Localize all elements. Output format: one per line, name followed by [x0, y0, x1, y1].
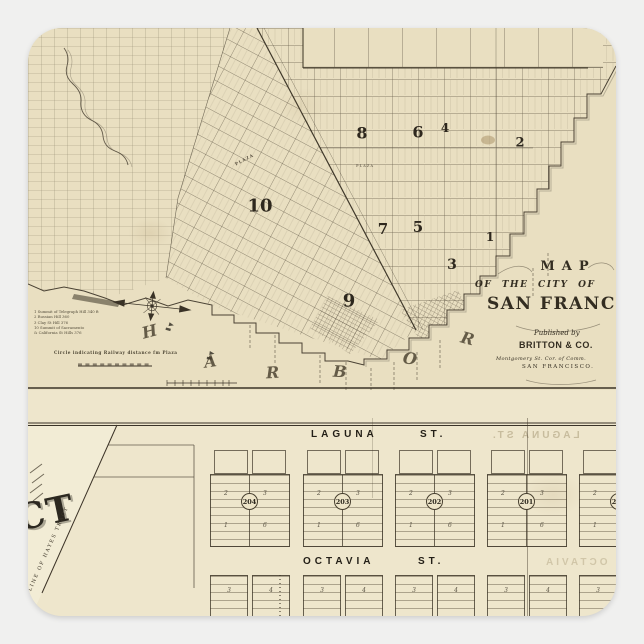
- block-number: 201: [520, 498, 534, 506]
- block-lots: 2 3 1 6 200: [579, 474, 616, 547]
- map-sticker[interactable]: 8 6 4 2 10 7 5 3 1 9 PLAZA PLAZA H A R B…: [28, 28, 616, 616]
- district-number: 6: [412, 123, 423, 142]
- block-number: 203: [336, 498, 350, 506]
- cartouche-address-city: SAN FRANCISCO.: [522, 364, 594, 370]
- block-number-badge: 200: [610, 493, 616, 510]
- district-number: 3: [447, 257, 457, 273]
- district-number: 9: [343, 291, 356, 312]
- half-block: 3: [303, 575, 341, 616]
- lot-number: 2: [409, 490, 413, 497]
- survey-strip-grid: [303, 28, 603, 68]
- city-block-202: 2 3 1 6 202: [395, 450, 473, 545]
- cartouche-publisher: BRITTON & CO.: [519, 340, 593, 350]
- lot-number: 6: [540, 522, 544, 529]
- half-block: 4: [529, 575, 567, 616]
- district-number: 5: [413, 218, 423, 236]
- lot-number: 3: [448, 490, 452, 497]
- district-number: 2: [515, 136, 524, 151]
- street-type-octavia: ST.: [418, 556, 444, 567]
- lot-number: 3: [263, 490, 267, 497]
- lot-number: 3: [227, 587, 231, 594]
- half-block: 4: [345, 575, 383, 616]
- legend-note: Circle indicating Railway distance fm Pl…: [54, 350, 177, 355]
- lot-number: 2: [593, 490, 597, 497]
- corner-lot: [437, 450, 471, 474]
- ghost-street-label: OCTAVIA: [543, 557, 608, 568]
- district-number: 7: [378, 220, 388, 238]
- street-name-octavia: OCTAVIA: [303, 556, 375, 567]
- lot-number: 4: [546, 587, 550, 594]
- block-number-badge: 204: [241, 493, 258, 510]
- corner-lot: [307, 450, 341, 474]
- half-block: 3: [579, 575, 616, 616]
- half-block: 4: [252, 575, 290, 616]
- lot-number: 1: [317, 522, 321, 529]
- lot-number: 4: [269, 587, 273, 594]
- ghost-street-name: OCTAVIA: [543, 557, 608, 568]
- ghost-street-name: LAGUNA: [519, 430, 579, 441]
- block-lots: 2 3 1 6 203: [303, 474, 383, 547]
- corner-lot: [252, 450, 286, 474]
- ghost-street-label: LAGUNA ST.: [490, 430, 580, 441]
- harbor-letter: B: [333, 362, 348, 382]
- cartouche-published-by: Published by: [534, 329, 580, 337]
- lot-number: 3: [356, 490, 360, 497]
- upper-map-canvas: [28, 28, 616, 390]
- fold-crease-line: [372, 418, 373, 498]
- plaza-label: PLAZA: [356, 164, 374, 168]
- block-lots: 2 3 1 6 204: [210, 474, 290, 547]
- street-name-laguna: LAGUNA: [311, 429, 378, 440]
- lot-number: 2: [317, 490, 321, 497]
- district-number: 8: [356, 124, 367, 143]
- lot-number-column: [279, 575, 281, 616]
- half-block: 4: [437, 575, 475, 616]
- lot-number: 3: [320, 587, 324, 594]
- lot-number: 2: [501, 490, 505, 497]
- block-number: 200: [612, 498, 616, 506]
- lot-number: 2: [224, 490, 228, 497]
- block-lots: 2 3 1 6 202: [395, 474, 475, 547]
- harbor-letter: O: [402, 348, 418, 369]
- block-number-badge: 203: [334, 493, 351, 510]
- page-background: 8 6 4 2 10 7 5 3 1 9 PLAZA PLAZA H A R B…: [0, 0, 644, 644]
- lot-number: 4: [362, 587, 366, 594]
- lot-number: 1: [224, 522, 228, 529]
- block-number: 202: [428, 498, 442, 506]
- corner-lot: [583, 450, 616, 474]
- cartouche-city-name: SAN FRANCISCO: [487, 294, 616, 314]
- harbor-letter: R: [266, 363, 280, 383]
- ghost-street-type: ST.: [490, 430, 513, 441]
- elevation-legend: 1 Summit of Telegraph Hill 340 ft 2 Russ…: [34, 309, 146, 335]
- half-block: 3: [210, 575, 248, 616]
- lot-number: 3: [540, 490, 544, 497]
- lot-number: 3: [596, 587, 600, 594]
- corner-lot: [529, 450, 563, 474]
- lot-number: 6: [263, 522, 267, 529]
- district-number: 10: [247, 196, 272, 217]
- corner-lot: [345, 450, 379, 474]
- lot-number: 6: [356, 522, 360, 529]
- cartouche-map-word: MAP: [525, 259, 611, 274]
- paper-stain: [481, 136, 495, 145]
- block-number-badge: 202: [426, 493, 443, 510]
- lot-number: 3: [412, 587, 416, 594]
- half-block: 3: [487, 575, 525, 616]
- cartouche-address: Montgomery St. Cor. of Comm.: [496, 356, 586, 362]
- lot-number: 1: [501, 522, 505, 529]
- corner-lot: [214, 450, 248, 474]
- lot-number: 6: [448, 522, 452, 529]
- cartouche-subtitle: OF THE CITY OF: [475, 280, 616, 290]
- fold-crease-line: [527, 418, 528, 616]
- block-number-badge: 201: [518, 493, 535, 510]
- harbor-letter: A: [203, 351, 218, 372]
- city-block-203: 2 3 1 6 203: [303, 450, 381, 545]
- city-block-204: 2 3 1 6 204: [210, 450, 288, 545]
- block-division-lines: [94, 445, 194, 588]
- corner-lot: [491, 450, 525, 474]
- corner-lot: [399, 450, 433, 474]
- half-block: 3: [395, 575, 433, 616]
- lot-number: 1: [593, 522, 597, 529]
- block-number: 204: [243, 498, 257, 506]
- lot-number: 3: [504, 587, 508, 594]
- district-number: 4: [441, 121, 449, 135]
- lot-number: 1: [409, 522, 413, 529]
- legend-line: & California St Hills 376: [34, 330, 146, 335]
- lot-number: 4: [454, 587, 458, 594]
- street-type-laguna: ST.: [420, 429, 446, 440]
- district-number: 1: [486, 230, 494, 244]
- city-block-201: 2 3 1 6 201: [487, 450, 565, 545]
- city-block-200: 2 3 1 6 200: [579, 450, 616, 545]
